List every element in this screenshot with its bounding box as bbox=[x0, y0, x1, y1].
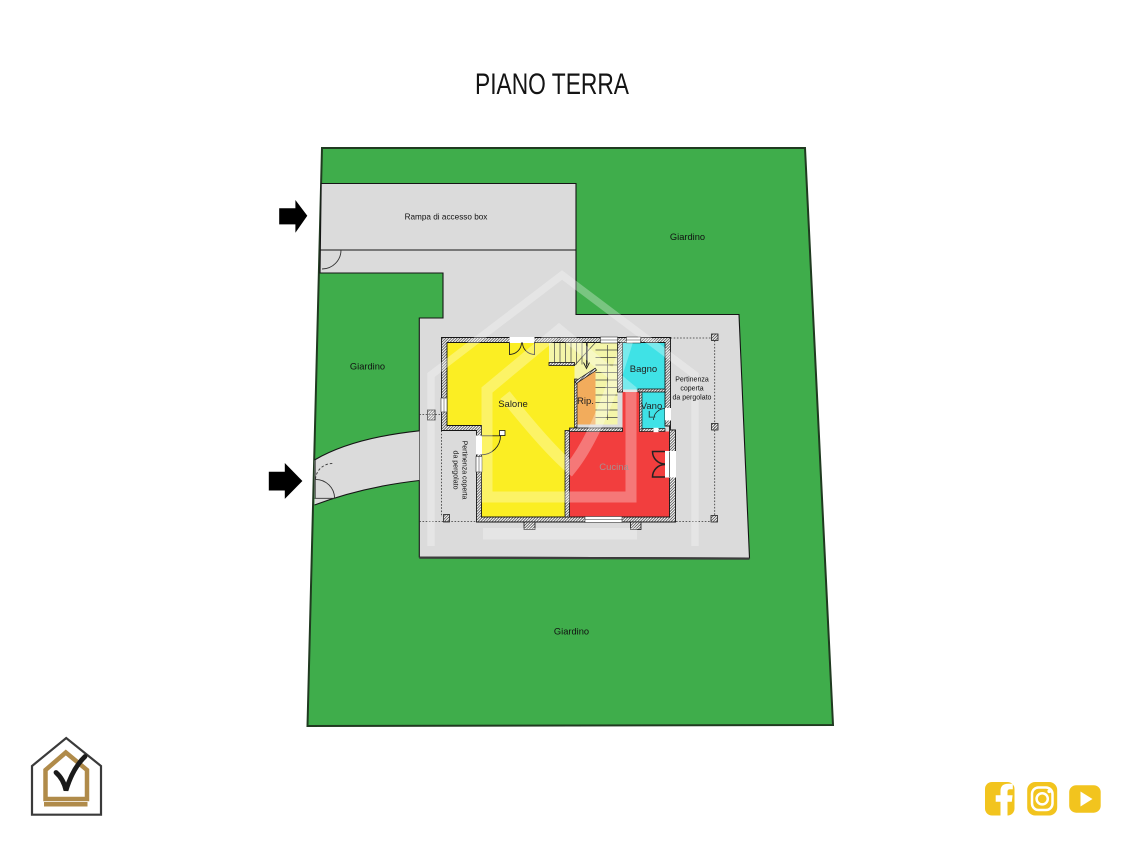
svg-text:Giardino: Giardino bbox=[554, 627, 589, 637]
svg-text:PIANO TERRA: PIANO TERRA bbox=[475, 68, 629, 101]
svg-text:Cucina: Cucina bbox=[599, 462, 629, 473]
svg-text:Pertinenza coperta: Pertinenza coperta bbox=[461, 441, 468, 500]
svg-text:Giardino: Giardino bbox=[670, 232, 705, 242]
svg-text:Rip.: Rip. bbox=[577, 396, 594, 407]
svg-text:coperta: coperta bbox=[680, 386, 703, 393]
svg-text:da pergolato: da pergolato bbox=[452, 451, 459, 490]
svg-text:da pergolato: da pergolato bbox=[673, 395, 712, 402]
svg-text:L.: L. bbox=[648, 410, 656, 421]
svg-text:Salone: Salone bbox=[498, 399, 528, 410]
svg-text:Bagno: Bagno bbox=[630, 364, 657, 375]
svg-text:Rampa di accesso box: Rampa di accesso box bbox=[405, 213, 488, 222]
svg-text:Giardino: Giardino bbox=[350, 362, 385, 372]
svg-text:Pertinenza: Pertinenza bbox=[675, 377, 709, 384]
